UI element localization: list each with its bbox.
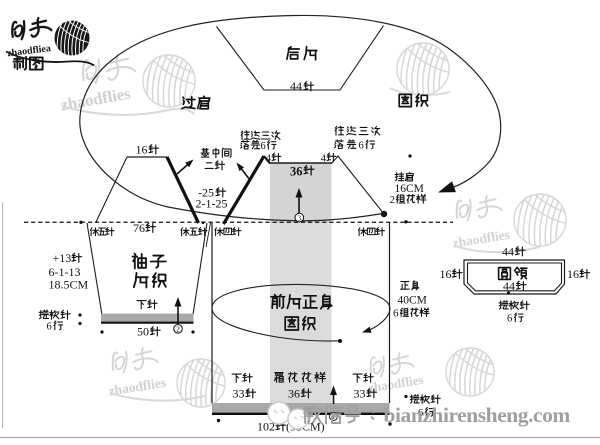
svg-text:3: 3 — [297, 213, 301, 222]
svg-text:36: 36 — [290, 165, 303, 179]
svg-text:2-1-25: 2-1-25 — [196, 197, 228, 211]
svg-text:6: 6 — [507, 314, 512, 325]
svg-text:18.5CM: 18.5CM — [49, 278, 89, 292]
svg-text:2: 2 — [390, 194, 396, 206]
svg-text:16: 16 — [136, 143, 148, 157]
svg-text:4: 4 — [321, 153, 327, 165]
svg-text:16: 16 — [440, 267, 452, 281]
svg-text:33: 33 — [233, 387, 245, 401]
svg-text:36: 36 — [288, 387, 300, 401]
svg-text:76: 76 — [133, 221, 145, 235]
svg-text:bianzhirensheng.com: bianzhirensheng.com — [384, 403, 571, 427]
svg-text:6: 6 — [47, 322, 52, 333]
svg-text:16CM: 16CM — [395, 183, 424, 195]
svg-text:16: 16 — [567, 267, 579, 281]
svg-text:44: 44 — [290, 79, 302, 93]
svg-text:40CM: 40CM — [398, 295, 427, 307]
svg-text:4: 4 — [266, 153, 272, 165]
svg-text:2: 2 — [176, 325, 180, 334]
svg-text:+13: +13 — [53, 251, 72, 265]
svg-text:33: 33 — [354, 387, 366, 401]
svg-text:6: 6 — [393, 308, 399, 320]
svg-text:50: 50 — [137, 325, 149, 339]
svg-text:44: 44 — [502, 245, 514, 259]
svg-text:6: 6 — [261, 141, 266, 152]
svg-text:6: 6 — [359, 140, 364, 151]
svg-text:44: 44 — [503, 279, 515, 293]
